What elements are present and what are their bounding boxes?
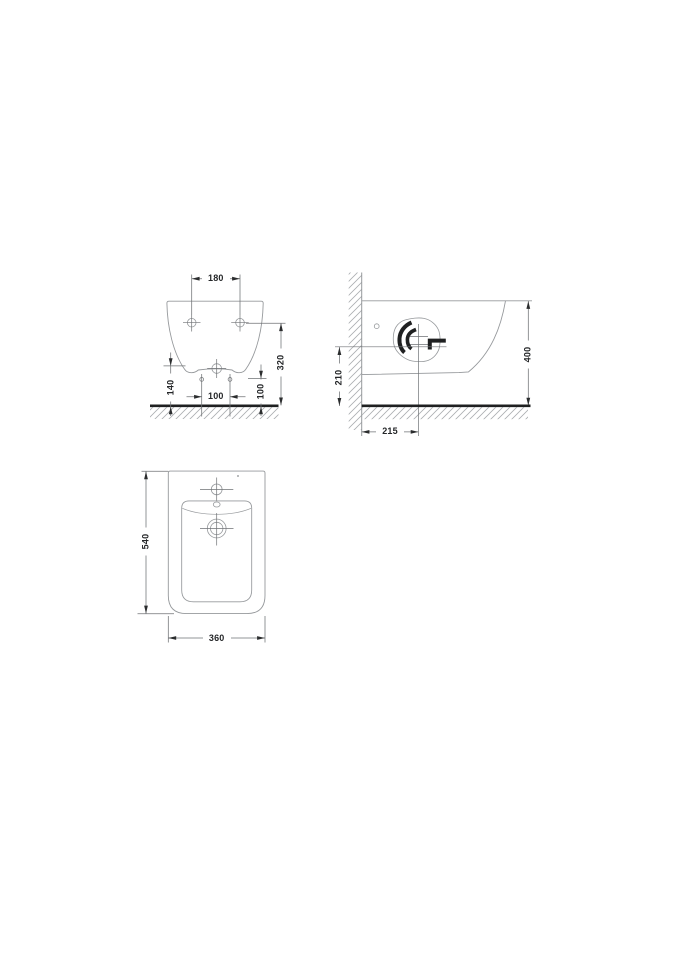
dim-front-lower-hole-height: 100 <box>256 380 267 404</box>
side-body-profile <box>362 301 506 375</box>
dim-side-outlet-from-wall: 215 <box>376 426 404 437</box>
dim-side-outlet-height: 210 <box>334 364 345 392</box>
side-floor-hatch <box>362 407 528 419</box>
dim-front-height: 320 <box>276 349 287 377</box>
plan-drain-crosshair <box>200 513 234 546</box>
dim-front-lower-hole-spacing: 100 <box>203 391 229 402</box>
plan-view <box>138 471 266 642</box>
front-body-outline <box>167 301 263 373</box>
side-wall-hatch <box>349 273 362 431</box>
side-view <box>335 273 532 437</box>
side-drain-pipe-lines <box>410 337 428 345</box>
plan-faucet-crosshair <box>200 478 233 501</box>
dim-front-hole-spacing: 180 <box>202 273 230 284</box>
dim-plan-width: 360 <box>203 633 231 644</box>
dim-plan-depth: 540 <box>141 527 152 555</box>
plan-overflow-hole <box>213 502 220 507</box>
drawing-sheet: 180 320 140 100 100 210 400 215 540 360 <box>0 0 675 960</box>
front-drain-crosshair <box>207 359 226 378</box>
drawing-linework <box>0 0 675 960</box>
side-drain-seal-inner <box>407 330 416 349</box>
plan-speck <box>237 475 239 477</box>
side-drain-bracket <box>430 341 446 350</box>
dim-side-height: 400 <box>523 340 534 368</box>
front-fixing-hole-crosshairs <box>183 314 249 332</box>
side-inlet-hole <box>374 324 379 329</box>
dim-front-outlet-height: 140 <box>165 374 176 402</box>
